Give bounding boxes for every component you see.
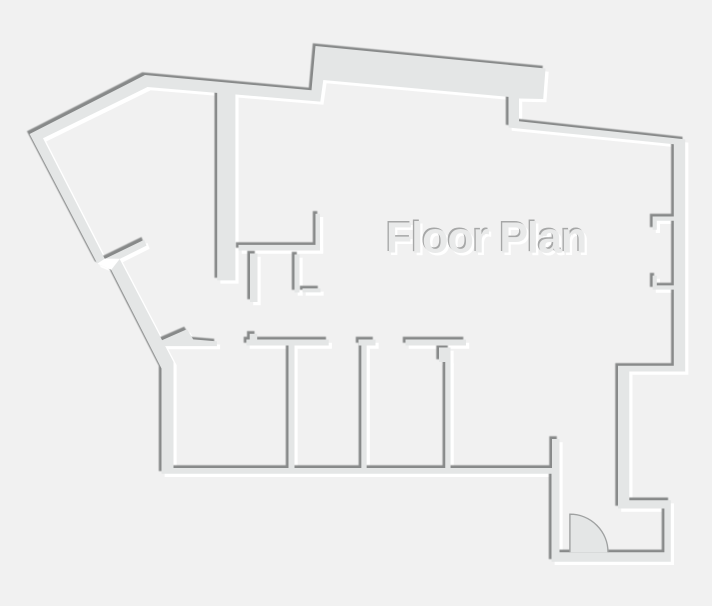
- svg-text:Floor Plan: Floor Plan: [386, 215, 586, 263]
